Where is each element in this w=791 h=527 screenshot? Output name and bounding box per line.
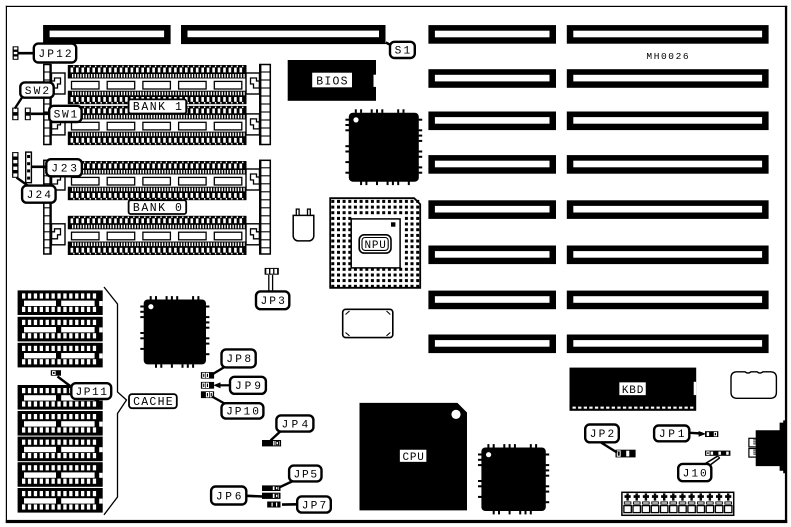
svg-text:JP11: JP11 bbox=[76, 387, 109, 399]
svg-text:NPU: NPU bbox=[364, 240, 386, 252]
svg-text:SW2: SW2 bbox=[25, 86, 51, 98]
svg-text:SW1: SW1 bbox=[54, 110, 79, 122]
svg-text:JP8: JP8 bbox=[226, 354, 253, 366]
svg-text:JP10: JP10 bbox=[226, 407, 261, 419]
svg-text:CPU: CPU bbox=[402, 452, 424, 464]
svg-text:JP1: JP1 bbox=[659, 429, 687, 441]
svg-text:JP9: JP9 bbox=[235, 381, 264, 393]
svg-text:JP5: JP5 bbox=[293, 469, 318, 481]
svg-text:J24: J24 bbox=[27, 190, 53, 202]
svg-text:MH0026: MH0026 bbox=[646, 51, 690, 62]
svg-text:JP3: JP3 bbox=[261, 296, 287, 308]
svg-text:J23: J23 bbox=[51, 164, 80, 176]
svg-text:CACHE: CACHE bbox=[133, 396, 174, 409]
svg-text:J10: J10 bbox=[683, 468, 709, 480]
svg-text:S1: S1 bbox=[395, 46, 413, 58]
svg-text:BIOS: BIOS bbox=[316, 75, 348, 88]
svg-text:JP7: JP7 bbox=[302, 500, 329, 512]
svg-text:JP2: JP2 bbox=[590, 429, 617, 441]
svg-text:JP12: JP12 bbox=[38, 49, 73, 61]
svg-text:JP4: JP4 bbox=[282, 419, 312, 431]
svg-text:KBD: KBD bbox=[622, 385, 644, 397]
svg-text:BANK 1: BANK 1 bbox=[133, 101, 184, 114]
svg-text:BANK 0: BANK 0 bbox=[133, 202, 184, 215]
svg-text:JP6: JP6 bbox=[216, 491, 244, 503]
